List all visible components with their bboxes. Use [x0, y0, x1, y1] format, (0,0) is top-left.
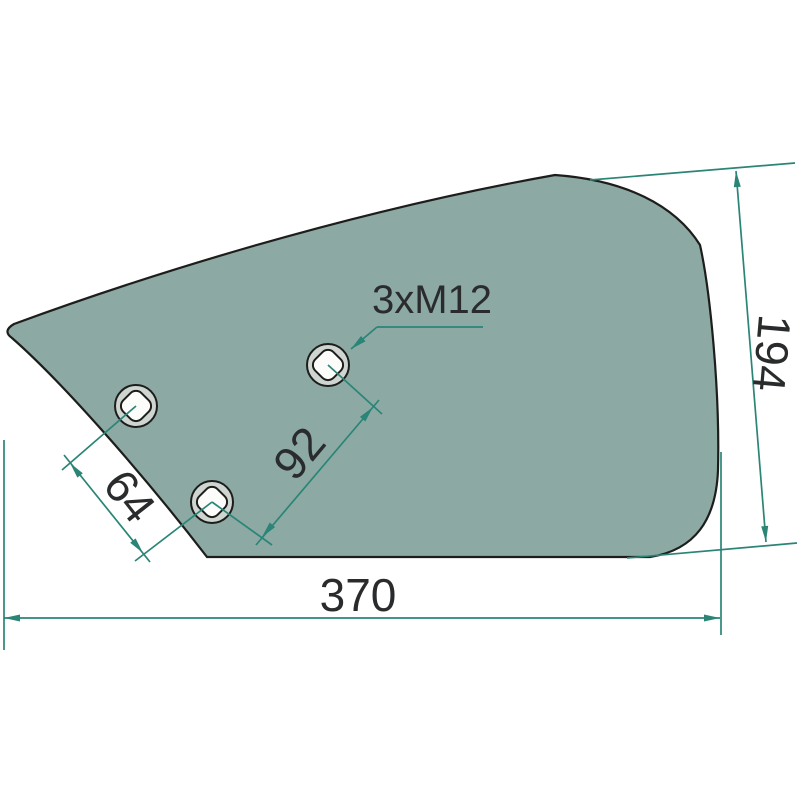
hole-thread-label-text: 3xM12 [372, 278, 492, 322]
arrowhead-left [4, 615, 20, 622]
dimension-text-height: 194 [743, 312, 800, 393]
arrowhead-top [734, 171, 741, 187]
arrowhead-right [704, 615, 720, 622]
dimension-text-width: 370 [320, 569, 397, 621]
technical-drawing-canvas: 370 194 64 92 3xM12 [0, 0, 800, 800]
arrowhead-bottom [761, 526, 768, 542]
extension-line-top [590, 163, 795, 180]
plough-part-drawing: 370 194 64 92 3xM12 [0, 0, 800, 800]
